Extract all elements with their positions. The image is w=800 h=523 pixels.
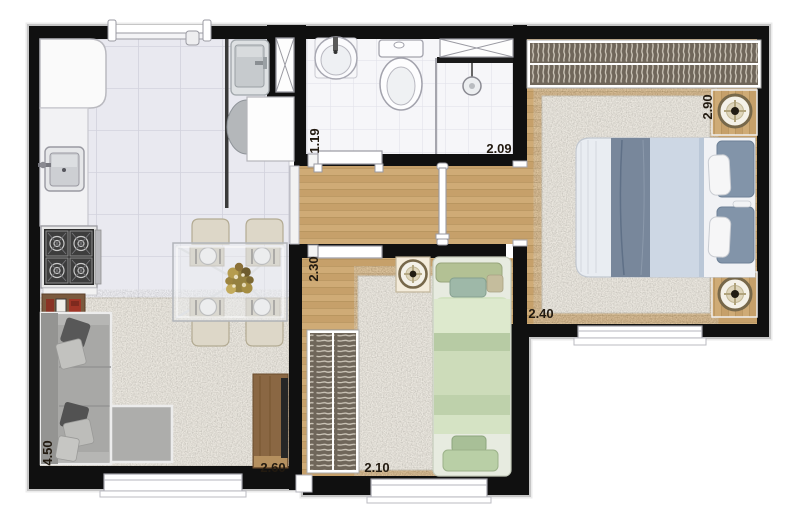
svg-text:2.30: 2.30 bbox=[306, 256, 321, 281]
svg-text:2.40: 2.40 bbox=[528, 306, 553, 321]
svg-text:2.09: 2.09 bbox=[486, 141, 511, 156]
svg-text:1.19: 1.19 bbox=[307, 128, 322, 153]
svg-text:2.90: 2.90 bbox=[700, 94, 715, 119]
svg-text:4.50: 4.50 bbox=[40, 440, 55, 465]
svg-text:2.60: 2.60 bbox=[260, 460, 285, 475]
svg-text:2.10: 2.10 bbox=[364, 460, 389, 475]
